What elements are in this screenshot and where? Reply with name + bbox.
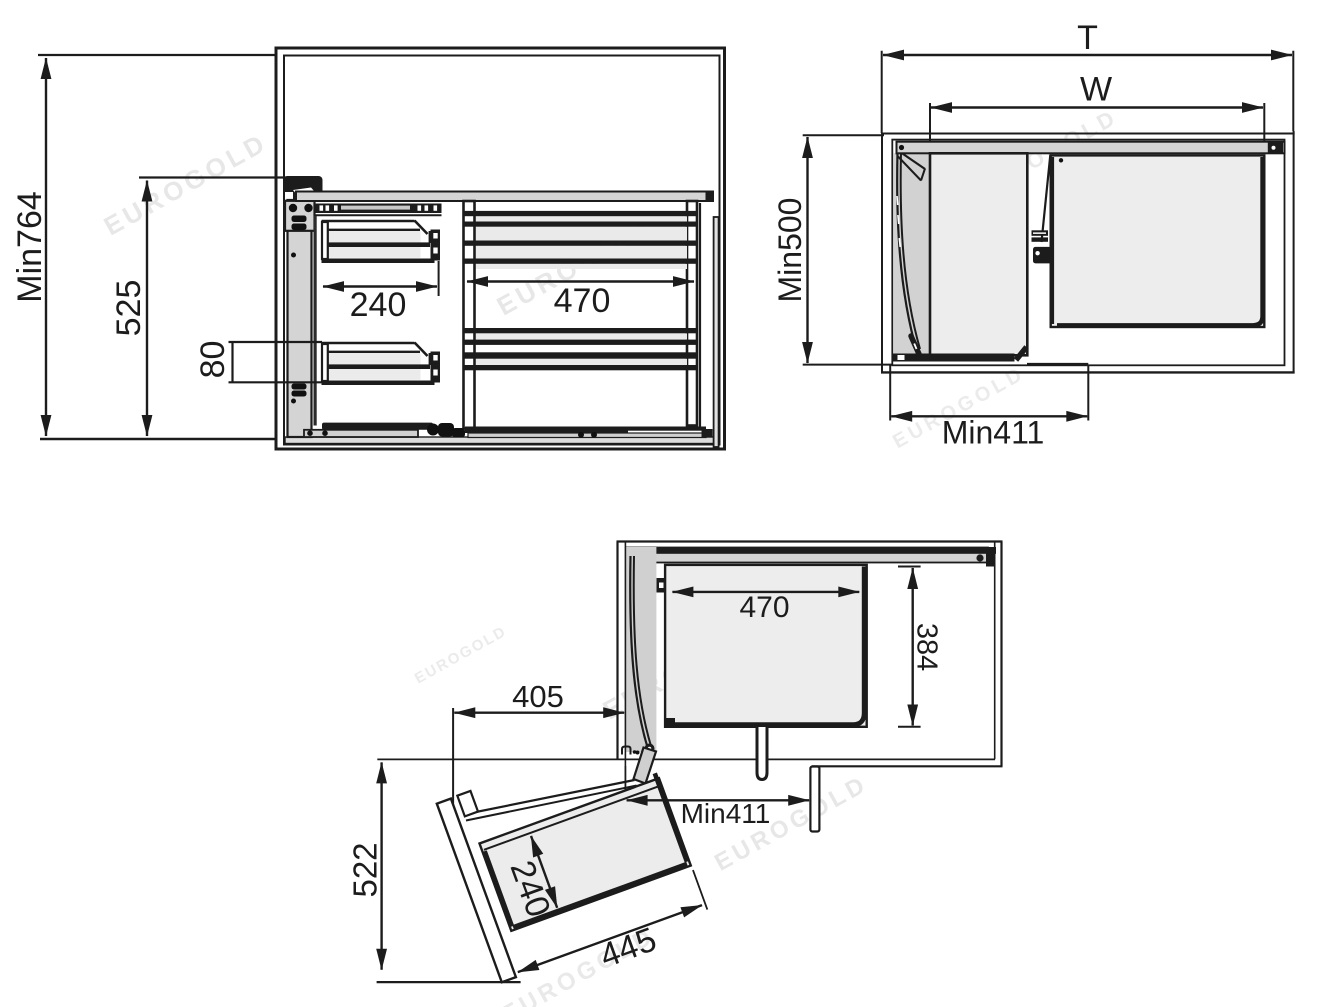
svg-text:525: 525 (110, 280, 148, 337)
svg-text:445: 445 (595, 920, 661, 975)
svg-text:240: 240 (350, 286, 407, 324)
svg-text:522: 522 (347, 842, 384, 897)
svg-text:Min500: Min500 (772, 198, 808, 303)
svg-text:T: T (1077, 19, 1098, 57)
svg-text:EUROGOLD: EUROGOLD (412, 623, 510, 688)
svg-text:EUROGOLD: EUROGOLD (99, 127, 273, 242)
svg-text:Min411: Min411 (942, 415, 1045, 451)
svg-text:470: 470 (554, 282, 611, 320)
svg-text:Min411: Min411 (681, 798, 771, 829)
svg-text:80: 80 (194, 341, 232, 379)
svg-text:470: 470 (739, 591, 789, 624)
svg-text:384: 384 (911, 623, 943, 671)
svg-text:W: W (1080, 71, 1112, 109)
svg-text:405: 405 (512, 679, 564, 714)
svg-text:Min764: Min764 (11, 191, 49, 303)
